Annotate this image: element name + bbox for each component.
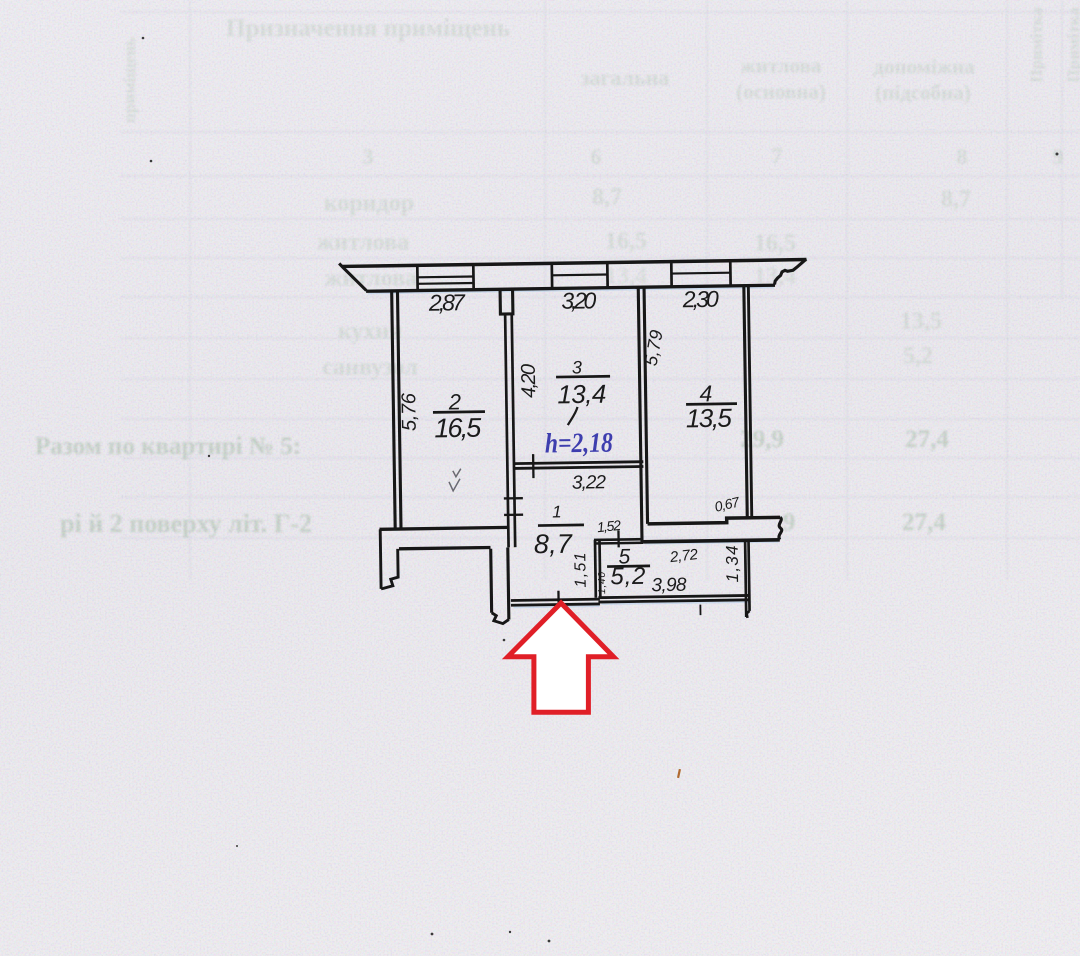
svg-text:5,2: 5,2	[610, 563, 645, 591]
svg-text:3: 3	[572, 357, 582, 377]
svg-text:1: 1	[552, 502, 562, 521]
svg-text:1,40: 1,40	[597, 571, 608, 594]
svg-text:3,98: 3,98	[651, 575, 687, 597]
svg-text:13,5: 13,5	[686, 403, 733, 434]
svg-text:13,4: 13,4	[557, 379, 606, 410]
svg-text:2,72: 2,72	[668, 546, 699, 566]
svg-text:2,30: 2,30	[682, 286, 720, 313]
svg-text:3,22: 3,22	[572, 472, 607, 494]
svg-text:3,20: 3,20	[561, 287, 597, 314]
svg-text:1,52: 1,52	[596, 517, 622, 535]
svg-text:h=2,18: h=2,18	[545, 428, 613, 460]
svg-text:1,34: 1,34	[723, 545, 743, 582]
svg-text:2: 2	[448, 389, 462, 414]
svg-text:5,76: 5,76	[398, 392, 421, 431]
svg-text:2,87: 2,87	[428, 289, 467, 316]
svg-text:0,67: 0,67	[713, 493, 742, 514]
svg-text:1,51: 1,51	[572, 552, 590, 587]
svg-text:4,20: 4,20	[518, 364, 541, 398]
svg-text:8,7: 8,7	[534, 529, 573, 560]
svg-text:16,5: 16,5	[434, 413, 482, 444]
